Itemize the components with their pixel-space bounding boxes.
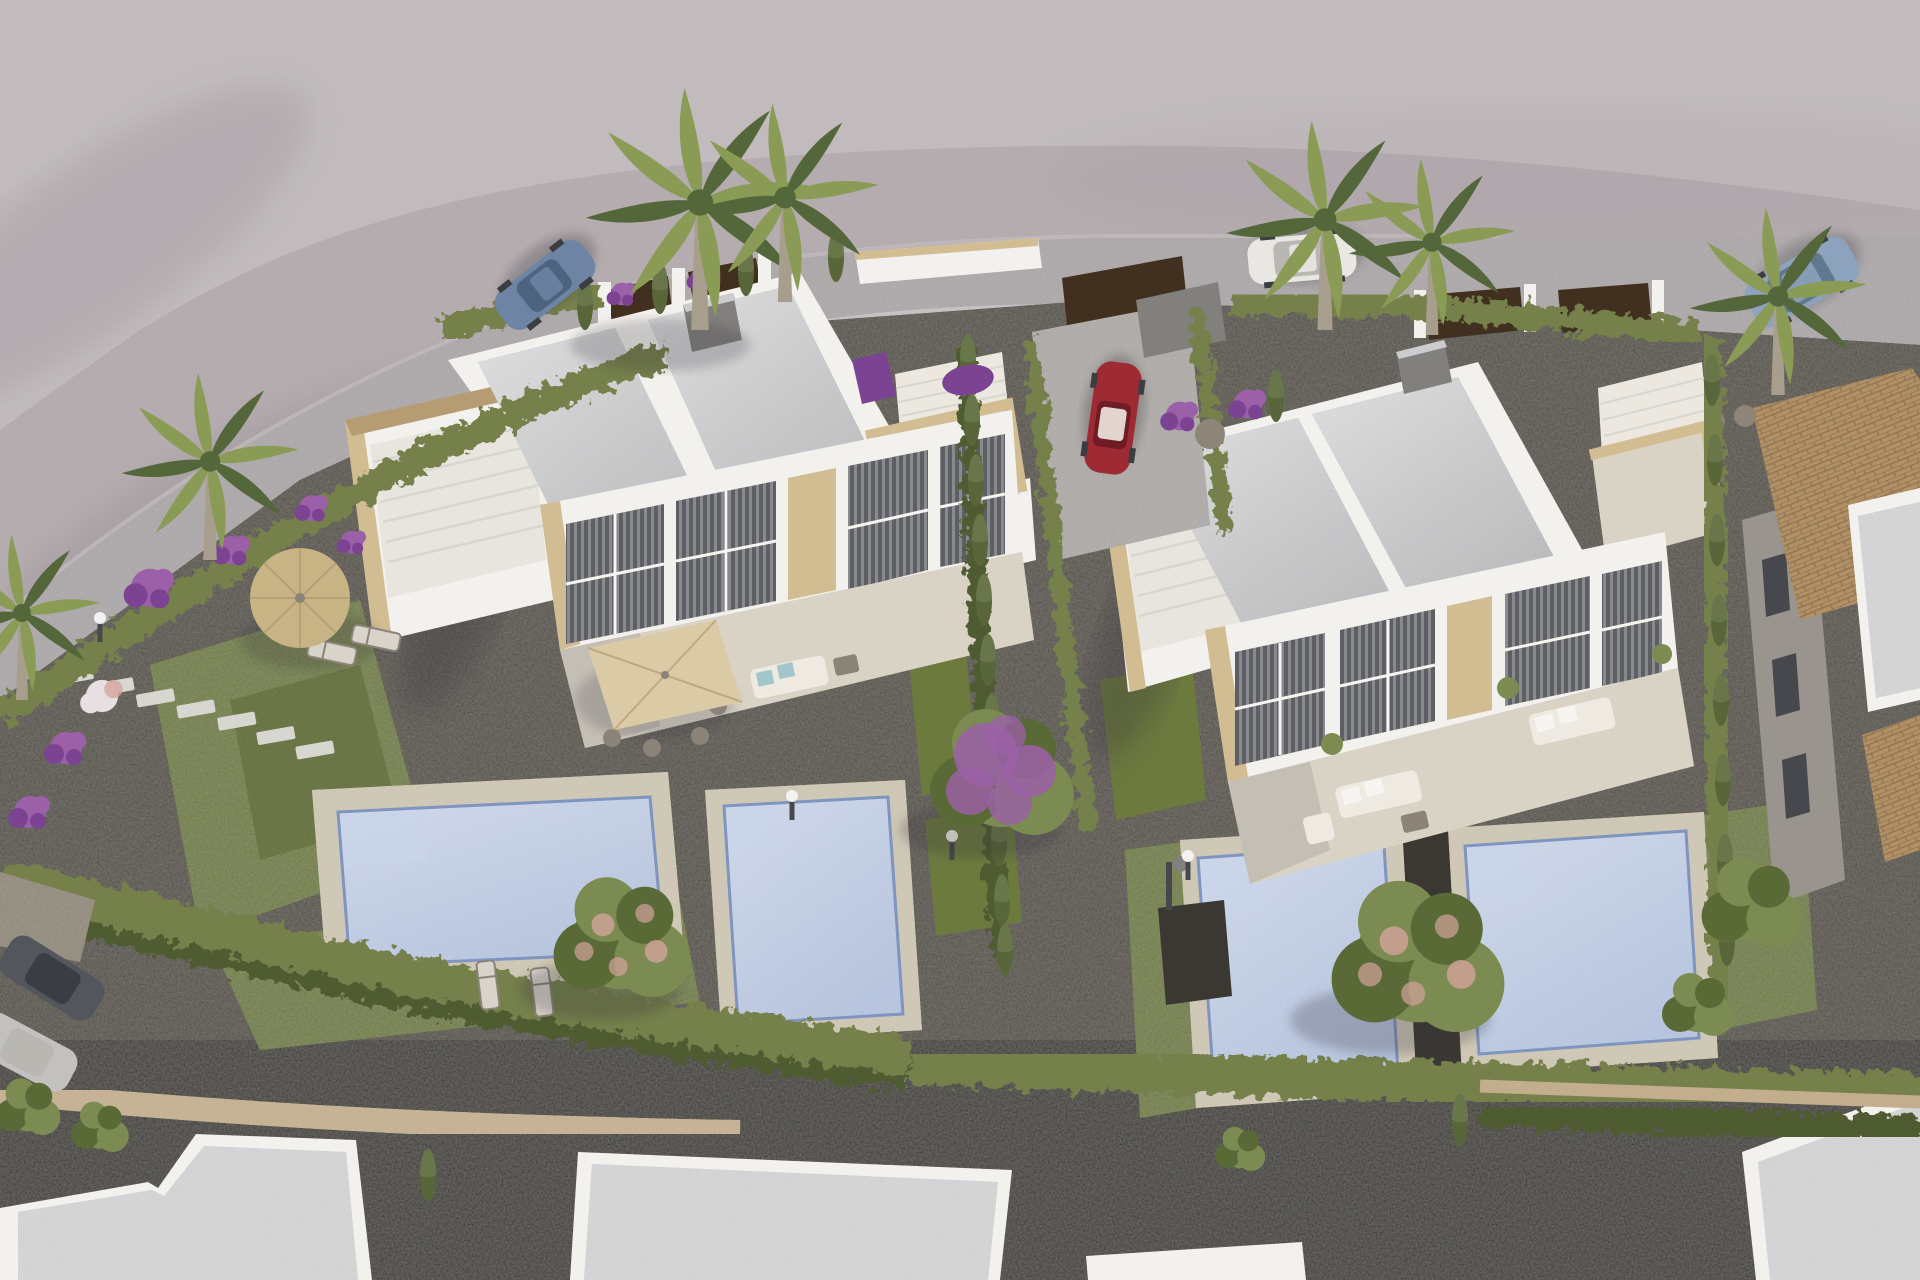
- second-pool: Second private pool: [705, 780, 922, 1042]
- facade-window: [566, 504, 664, 644]
- right-pool-right-unit: Right villa pool (right unit): [1448, 812, 1718, 1075]
- facade-window: [848, 450, 928, 590]
- stone-cladding: [788, 468, 836, 600]
- potted-plant: [1497, 677, 1519, 699]
- stone-cladding: [1447, 596, 1492, 720]
- facade-window: [1235, 633, 1325, 766]
- aerial-render: Bare graded ground Curved access road Da…: [0, 0, 1920, 1280]
- facade-window: [676, 481, 776, 621]
- garden-rock: [1734, 405, 1756, 427]
- potted-plant: [1321, 733, 1343, 755]
- pool-steps: [340, 810, 428, 866]
- potted-plant: [1652, 644, 1672, 664]
- facade-window: [1340, 609, 1435, 742]
- facade-window: [1602, 561, 1662, 686]
- aerial-render-canvas: Bare graded ground Curved access road Da…: [0, 0, 1920, 1280]
